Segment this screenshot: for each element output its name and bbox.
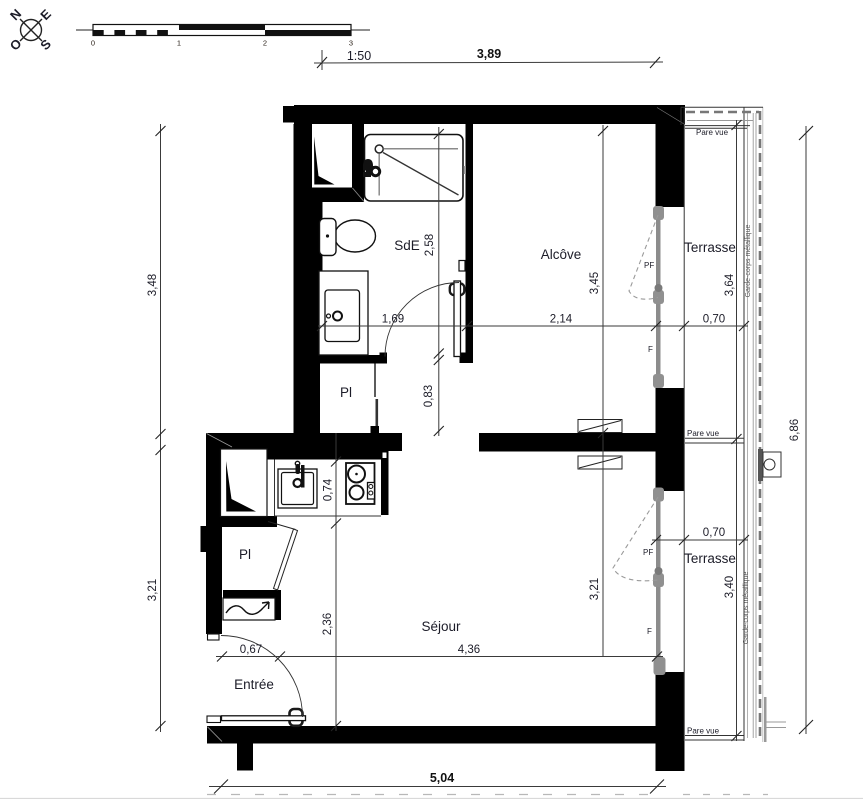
svg-text:Alcôve: Alcôve xyxy=(541,247,582,262)
svg-text:Pare vue: Pare vue xyxy=(687,429,720,438)
svg-text:3,89: 3,89 xyxy=(477,47,501,61)
svg-text:0,70: 0,70 xyxy=(703,314,725,326)
svg-text:1: 1 xyxy=(177,39,181,48)
svg-text:2,36: 2,36 xyxy=(322,613,334,635)
svg-text:Entrée: Entrée xyxy=(234,677,274,692)
svg-text:0,67: 0,67 xyxy=(240,644,262,656)
svg-text:0,83: 0,83 xyxy=(423,385,435,407)
svg-text:Pl: Pl xyxy=(340,385,352,400)
svg-text:PF: PF xyxy=(644,261,654,270)
svg-text:Terrasse: Terrasse xyxy=(684,240,736,255)
svg-text:Garde-corps métallique: Garde-corps métallique xyxy=(745,225,752,298)
svg-text:0,74: 0,74 xyxy=(323,478,335,501)
svg-text:5,04: 5,04 xyxy=(430,771,454,785)
svg-text:6,86: 6,86 xyxy=(789,419,801,441)
svg-text:3,64: 3,64 xyxy=(724,273,736,296)
svg-text:3,45: 3,45 xyxy=(589,272,601,294)
svg-text:Terrasse: Terrasse xyxy=(684,551,736,566)
svg-text:3,48: 3,48 xyxy=(147,274,159,296)
svg-text:3: 3 xyxy=(349,39,353,48)
svg-text:F: F xyxy=(648,345,653,354)
svg-text:3,40: 3,40 xyxy=(724,576,736,598)
svg-text:Pl: Pl xyxy=(239,547,251,562)
svg-text:PF: PF xyxy=(643,548,653,557)
svg-text:SdE: SdE xyxy=(394,238,420,253)
svg-text:1,69: 1,69 xyxy=(382,314,404,326)
svg-text:4,36: 4,36 xyxy=(458,644,480,656)
svg-text:Séjour: Séjour xyxy=(421,619,461,634)
svg-text:Pare vue: Pare vue xyxy=(696,128,729,137)
svg-text:0,70: 0,70 xyxy=(703,527,725,539)
svg-text:3,21: 3,21 xyxy=(147,579,159,601)
svg-text:2,14: 2,14 xyxy=(550,314,573,326)
svg-text:1:50: 1:50 xyxy=(347,49,371,63)
svg-text:2,58: 2,58 xyxy=(424,234,436,256)
svg-text:0: 0 xyxy=(91,39,95,48)
svg-text:Garde-corps métallique: Garde-corps métallique xyxy=(743,572,750,645)
svg-text:3,21: 3,21 xyxy=(589,578,601,600)
svg-text:F: F xyxy=(647,627,652,636)
svg-text:Pare vue: Pare vue xyxy=(687,727,720,736)
svg-text:2: 2 xyxy=(263,39,267,48)
